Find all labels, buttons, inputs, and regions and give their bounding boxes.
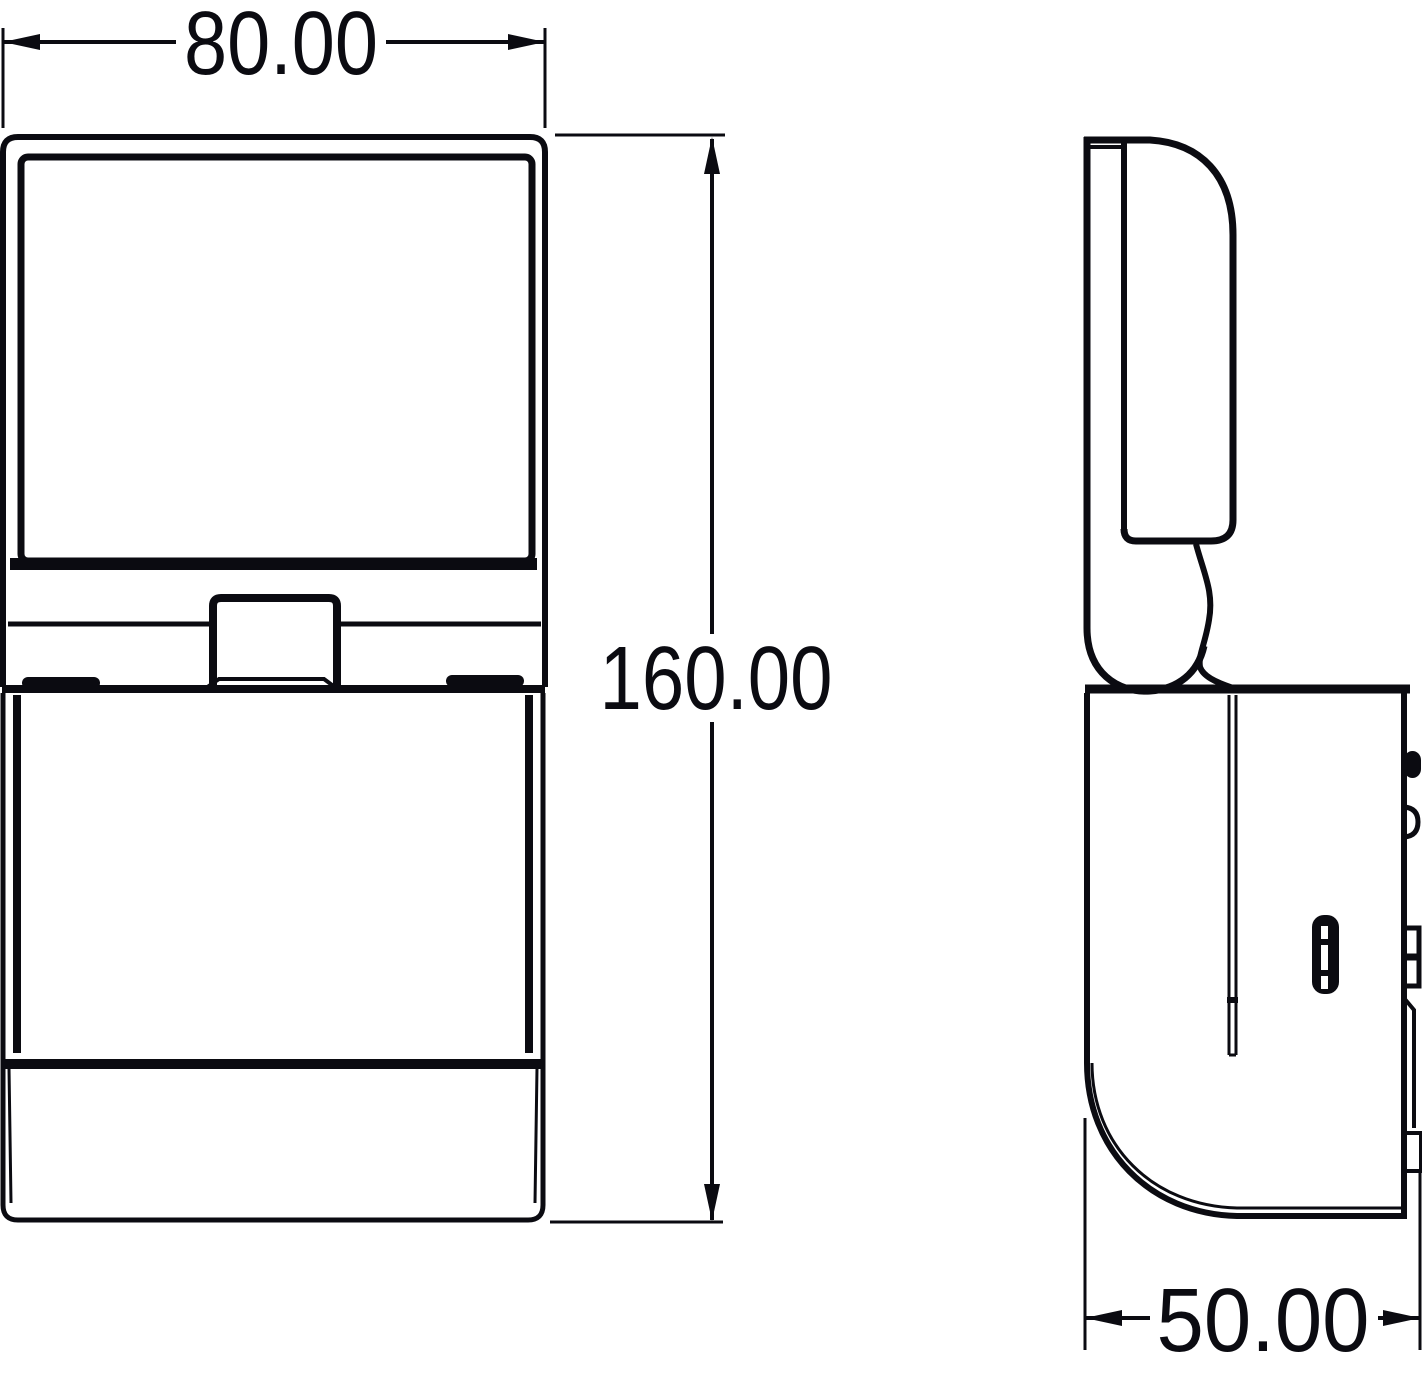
front-view [2,137,545,1220]
side-usb-slit-top [1321,926,1328,939]
side-head-bottom-u [1087,628,1204,691]
side-right-tab-top [1404,751,1421,778]
dimension-width-arrow-left [3,34,40,50]
dimension-drawing: 80.00 160.00 50.00 [0,0,1422,1374]
side-view [1084,137,1421,1216]
dimension-depth-value: 50.00 [1157,1271,1370,1371]
front-bracket-box [213,598,337,688]
dimension-width: 80.00 [3,0,545,128]
side-backbox-outline [1087,693,1404,1216]
front-backbox-outline [3,693,543,1220]
front-lens-panel [21,157,532,561]
dimension-height-arrow-bottom [704,1184,720,1221]
side-right-tooth-1 [1404,928,1419,956]
dimension-depth-arrow-left [1085,1310,1122,1326]
side-backbox-inner-contour [1092,1063,1404,1208]
side-divider-tick [1227,997,1238,1003]
front-head-outline [3,137,545,687]
side-usb-slit-middle [1321,945,1328,970]
front-lower-cover-contours [9,1068,537,1203]
dimension-depth: 50.00 [1085,1118,1420,1371]
side-usb-slit-bottom [1321,976,1328,989]
dimension-width-arrow-right [508,34,545,50]
dimension-height: 160.00 [550,135,833,1222]
technical-drawing-canvas: 80.00 160.00 50.00 [0,0,1422,1374]
side-head-front-face [1084,140,1233,541]
side-hinge-knuckle [1196,544,1233,688]
side-right-tooth-2 [1404,958,1419,986]
dimension-depth-arrow-right [1383,1310,1420,1326]
dimension-height-value: 160.00 [600,629,833,729]
front-backbox-inner-walls [17,695,529,1053]
dimension-width-value: 80.00 [184,0,378,94]
dimension-height-arrow-top [704,137,720,174]
